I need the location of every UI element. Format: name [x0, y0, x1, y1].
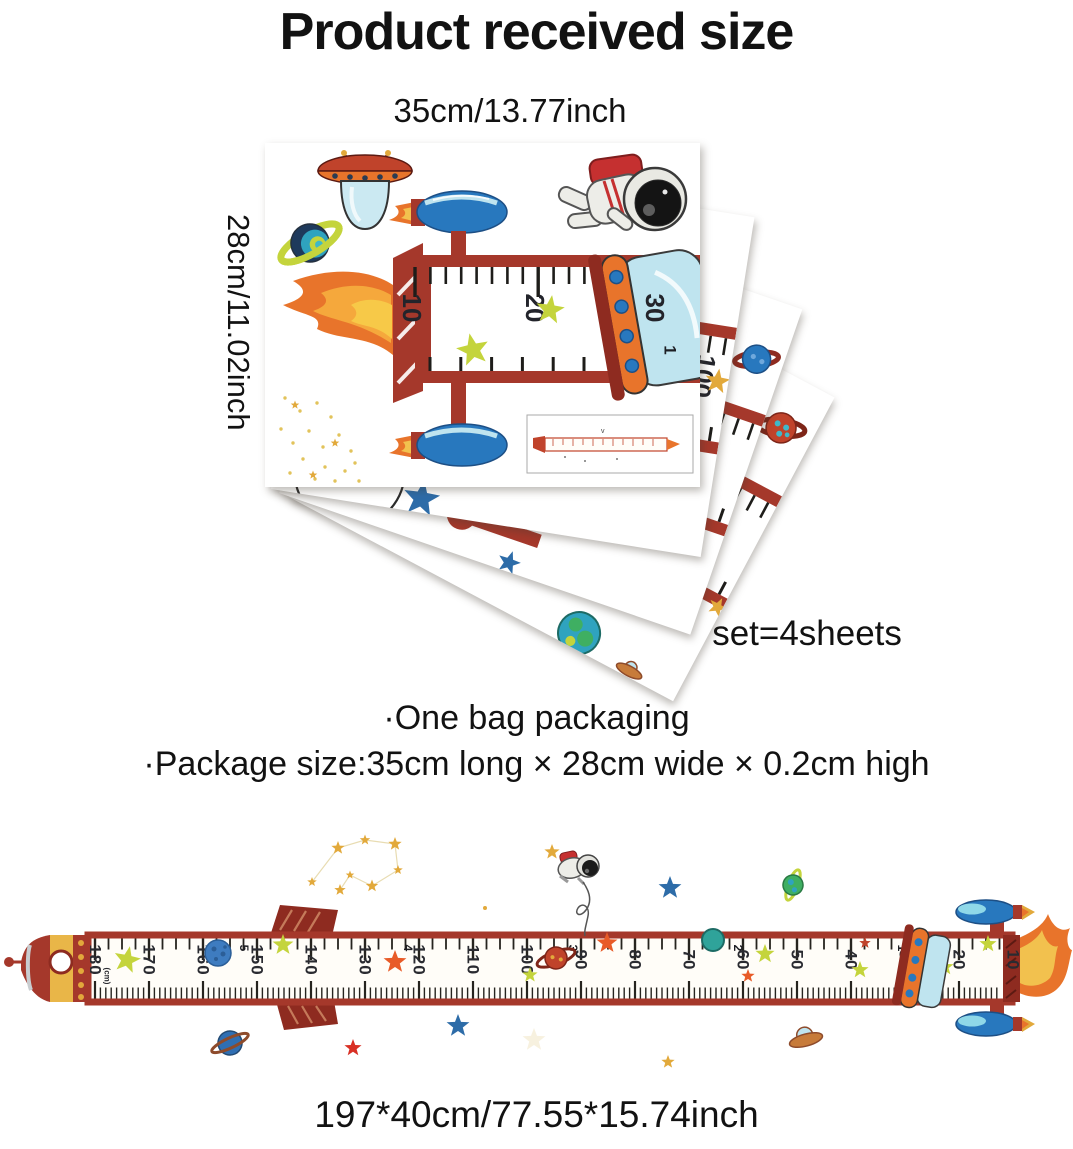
ringed-planet-icon [733, 343, 780, 375]
svg-text:50: 50 [788, 950, 807, 971]
booster-top-icon [956, 900, 1035, 936]
svg-text:70: 70 [680, 950, 699, 971]
astronaut-icon [557, 154, 686, 233]
svg-text:170: 170 [140, 944, 159, 975]
assembled-chart-graphic: 180(cm)170160150140130120110100908070605… [0, 830, 1073, 1075]
ufo-icon [786, 1023, 824, 1050]
astronaut-icon [556, 850, 599, 884]
svg-text:100: 100 [518, 944, 537, 975]
assembled-size-label: 197*40cm/77.55*15.74inch [0, 1094, 1073, 1136]
earth-icon [551, 605, 608, 662]
green-planet-icon [778, 867, 808, 904]
ringed-planet-icon [272, 210, 348, 276]
svg-text:2: 2 [731, 945, 745, 952]
sheet-height-label: 28cm/11.02inch [220, 150, 256, 495]
svg-text:140: 140 [302, 944, 321, 975]
sheet-1: 1020301 v [265, 143, 700, 487]
sheet1-artwork: 1020301 v [265, 143, 700, 487]
star-dots [279, 396, 360, 482]
ufo-icon [614, 656, 646, 682]
packaging-info: ·One bag packaging ·Package size:35cm lo… [0, 696, 1073, 787]
upper-decorations [307, 835, 808, 937]
sheet-stack: 100 [265, 143, 700, 487]
svg-text:4: 4 [401, 945, 415, 952]
tether-line [577, 882, 590, 936]
product-thumbnail: v [527, 415, 693, 473]
svg-text:60: 60 [734, 950, 753, 971]
svg-text:(cm): (cm) [103, 968, 112, 985]
svg-text:80: 80 [626, 950, 645, 971]
page-title: Product received size [0, 2, 1073, 62]
svg-text:5: 5 [237, 945, 251, 952]
svg-text:30: 30 [640, 294, 670, 323]
svg-text:10: 10 [397, 294, 427, 323]
svg-text:130: 130 [356, 944, 375, 975]
svg-text:1: 1 [661, 345, 680, 354]
svg-text:v: v [601, 428, 605, 435]
svg-text:10: 10 [1004, 950, 1023, 971]
booster-top-icon [389, 191, 507, 257]
product-infographic: { "header": { "title": "Product received… [0, 0, 1073, 1149]
packaging-line2: ·Package size:35cm long × 28cm wide × 0.… [0, 742, 1073, 788]
svg-text:20: 20 [950, 950, 969, 971]
sheet-width-label: 35cm/13.77inch [394, 92, 627, 130]
svg-text:110: 110 [464, 945, 483, 975]
packaging-line1: ·One bag packaging [0, 696, 1073, 742]
rocket-nose-icon [4, 935, 90, 1002]
flame-icon [283, 272, 393, 355]
